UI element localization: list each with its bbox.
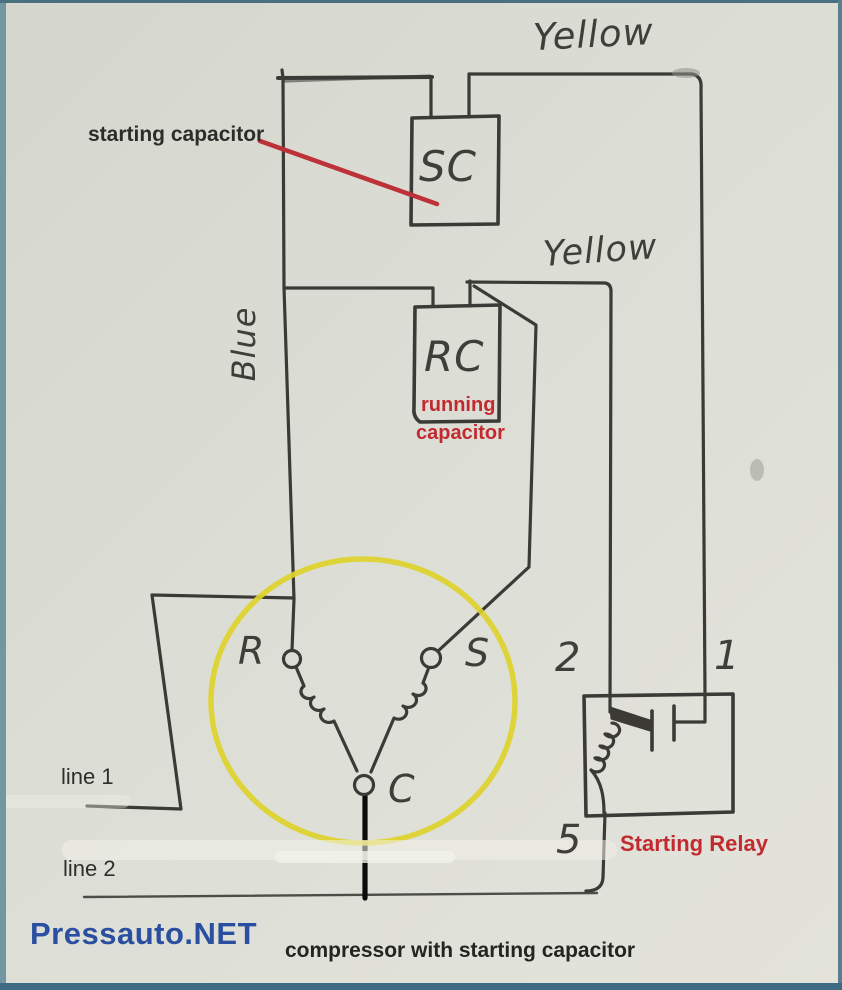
starting-relay-label: Starting Relay bbox=[620, 833, 768, 855]
terminal-s-circle bbox=[422, 649, 441, 668]
wire-label-yellow-top: Yellow bbox=[532, 13, 655, 56]
relay-coil bbox=[591, 723, 620, 813]
whiteout-streak-small bbox=[0, 795, 130, 808]
relay-terminal-1-label: 1 bbox=[714, 636, 740, 676]
wire-line2 bbox=[84, 893, 597, 897]
wire-label-yellow-mid: Yellow bbox=[542, 230, 659, 273]
sc-box-label: SC bbox=[419, 146, 477, 188]
wire-yellow-outer bbox=[469, 74, 705, 694]
run-winding-coil bbox=[296, 667, 357, 771]
motor-terminal-c-label: C bbox=[388, 770, 416, 808]
relay-terminal-5-label: 5 bbox=[556, 820, 582, 860]
terminal-r-circle bbox=[284, 651, 301, 668]
wire-blue bbox=[282, 70, 294, 650]
wire-line1 bbox=[87, 595, 294, 809]
starting-relay-box bbox=[584, 694, 733, 816]
scan-smudge-top bbox=[672, 68, 700, 78]
diagram-caption: compressor with starting capacitor bbox=[285, 940, 635, 961]
relay-contact-right-lead bbox=[676, 696, 705, 722]
line1-label: line 1 bbox=[61, 766, 114, 788]
terminal-c-circle bbox=[355, 776, 374, 795]
watermark-pressauto: Pressauto.NET bbox=[30, 918, 257, 949]
scanned-wiring-diagram: starting capacitor running capacitor Sta… bbox=[0, 0, 842, 990]
scan-smudge-right bbox=[750, 459, 764, 481]
wire-rc-horizontal bbox=[284, 288, 433, 306]
running-capacitor-label-line2: capacitor bbox=[416, 423, 505, 443]
starting-capacitor-label: starting capacitor bbox=[88, 124, 264, 145]
relay-terminal-2-label: 2 bbox=[555, 638, 581, 678]
line2-label: line 2 bbox=[63, 858, 116, 880]
scan-border-top bbox=[0, 0, 842, 3]
rc-box-label: RC bbox=[424, 336, 485, 378]
wire-label-blue: Blue bbox=[228, 290, 272, 398]
motor-terminal-r-label: R bbox=[238, 632, 265, 670]
start-winding-coil bbox=[371, 667, 429, 772]
scan-border-right bbox=[838, 0, 842, 990]
whiteout-streak-bright bbox=[275, 851, 455, 863]
scan-border-bottom bbox=[0, 983, 842, 990]
running-capacitor-label-line1: running bbox=[421, 395, 495, 415]
motor-terminal-s-label: S bbox=[465, 634, 490, 672]
scan-border-left bbox=[0, 0, 6, 990]
relay-contact-arm bbox=[610, 707, 650, 731]
